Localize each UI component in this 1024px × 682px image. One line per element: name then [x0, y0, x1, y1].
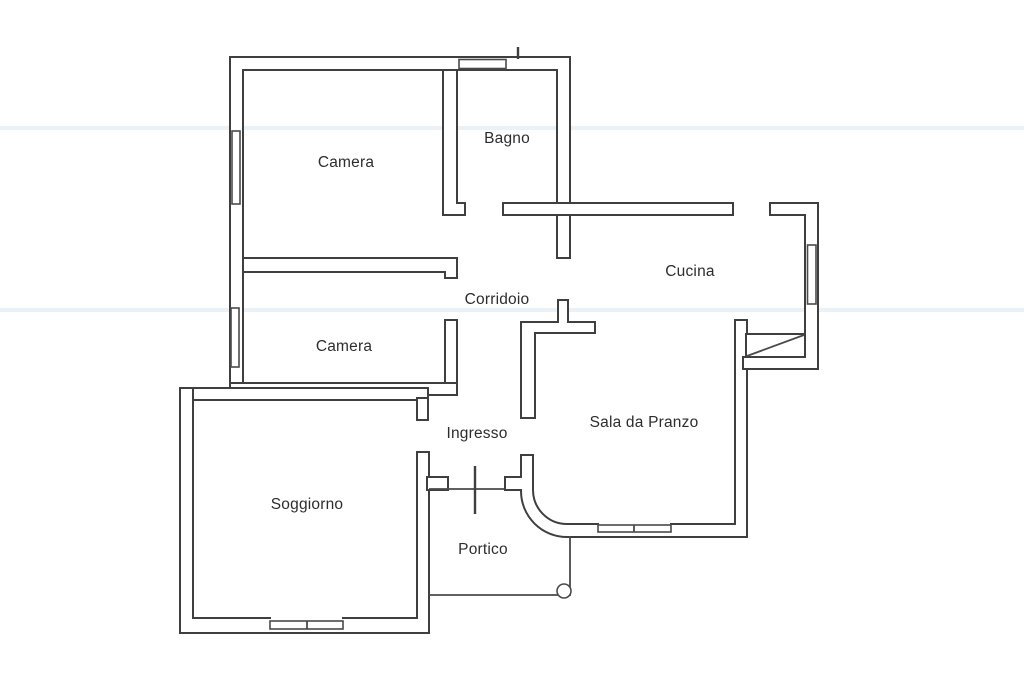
room-label-sala-da-pranzo: Sala da Pranzo	[590, 414, 699, 432]
wall-between-camere	[243, 258, 457, 278]
wall-cucina-top	[503, 203, 733, 215]
room-label-camera-2: Camera	[316, 338, 372, 356]
wall-foot-portico-left	[427, 477, 448, 490]
room-label-camera-1: Camera	[318, 154, 374, 172]
window-bagno-top	[459, 60, 506, 69]
room-label-corridoio: Corridoio	[465, 291, 530, 309]
floor-plan-page: Camera Bagno Cucina Corridoio Camera Ing…	[0, 0, 1024, 682]
room-label-portico: Portico	[458, 541, 508, 559]
scan-artifact-lines	[0, 126, 1024, 312]
room-label-ingresso: Ingresso	[446, 425, 507, 443]
room-label-soggiorno: Soggiorno	[271, 496, 343, 514]
outer-wall-top-left	[230, 57, 570, 397]
window-cucina-right	[808, 245, 817, 304]
room-label-bagno: Bagno	[484, 130, 530, 148]
door-markers	[475, 47, 518, 514]
wall-stub-soggiorno-door	[417, 398, 428, 420]
wall-camera1-bagno	[443, 70, 465, 215]
portico-column	[557, 584, 571, 598]
wall-soggiorno-top	[180, 388, 428, 400]
floor-plan-drawing	[0, 0, 1024, 682]
wall-corridoio-L	[521, 300, 595, 418]
window-camera1-left	[232, 131, 240, 204]
room-label-cucina: Cucina	[665, 263, 714, 281]
window-camera2-left	[231, 308, 239, 367]
